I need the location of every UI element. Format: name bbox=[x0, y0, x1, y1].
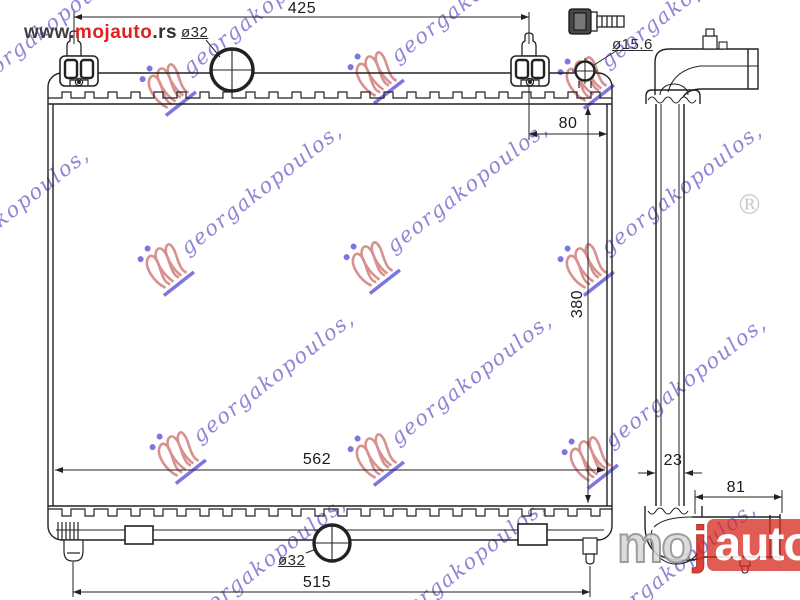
site-url-watermark: www.mojauto.rs bbox=[24, 22, 177, 44]
dimension-offset-right: 80 bbox=[548, 115, 588, 133]
dimension-hole-diameter: ø15.6 bbox=[612, 36, 653, 53]
brand-logo-box: auto bbox=[707, 519, 800, 571]
bottom-outlet bbox=[314, 525, 350, 561]
side-top-elbow bbox=[655, 29, 758, 97]
bottom-crimp-joint bbox=[48, 509, 612, 516]
dimension-bottom-width: 515 bbox=[297, 574, 337, 592]
bottom-bracket-right bbox=[518, 524, 547, 545]
mount-bracket-right bbox=[511, 33, 549, 86]
bottom-pin-right bbox=[583, 538, 597, 564]
side-core bbox=[656, 104, 684, 506]
bottom-bracket-left bbox=[125, 526, 153, 544]
dimension-inlet-diameter: ø32 bbox=[181, 24, 208, 41]
dimension-outlet-diameter: ø32 bbox=[278, 552, 305, 569]
dimension-top-width: 425 bbox=[282, 0, 322, 18]
top-crimp-joint bbox=[48, 92, 612, 98]
drain-plug bbox=[58, 522, 83, 561]
top-inlet bbox=[211, 49, 253, 91]
brand-logo-j: j bbox=[693, 519, 705, 571]
sensor-hole bbox=[572, 58, 598, 88]
bolt-sketch bbox=[569, 9, 624, 34]
dimension-pipe-length: 81 bbox=[716, 479, 756, 497]
radiator-line-drawing bbox=[0, 0, 800, 600]
brand-logo-mo: mo bbox=[617, 519, 691, 571]
radiator-technical-drawing: georgakopoulos,georgakopoulos,georgakopo… bbox=[0, 0, 800, 600]
brand-logo-auto: auto bbox=[714, 518, 800, 571]
dimension-core-height: 380 bbox=[569, 282, 587, 326]
url-tld: .rs bbox=[152, 22, 177, 43]
brand-logo: moj auto bbox=[617, 519, 800, 571]
dimension-core-thickness: 23 bbox=[653, 452, 693, 470]
dimension-overall-width: 562 bbox=[297, 451, 337, 469]
url-www: www. bbox=[24, 22, 75, 43]
url-brand: mojauto bbox=[75, 22, 152, 43]
registered-trademark-symbol: ® bbox=[736, 190, 763, 221]
